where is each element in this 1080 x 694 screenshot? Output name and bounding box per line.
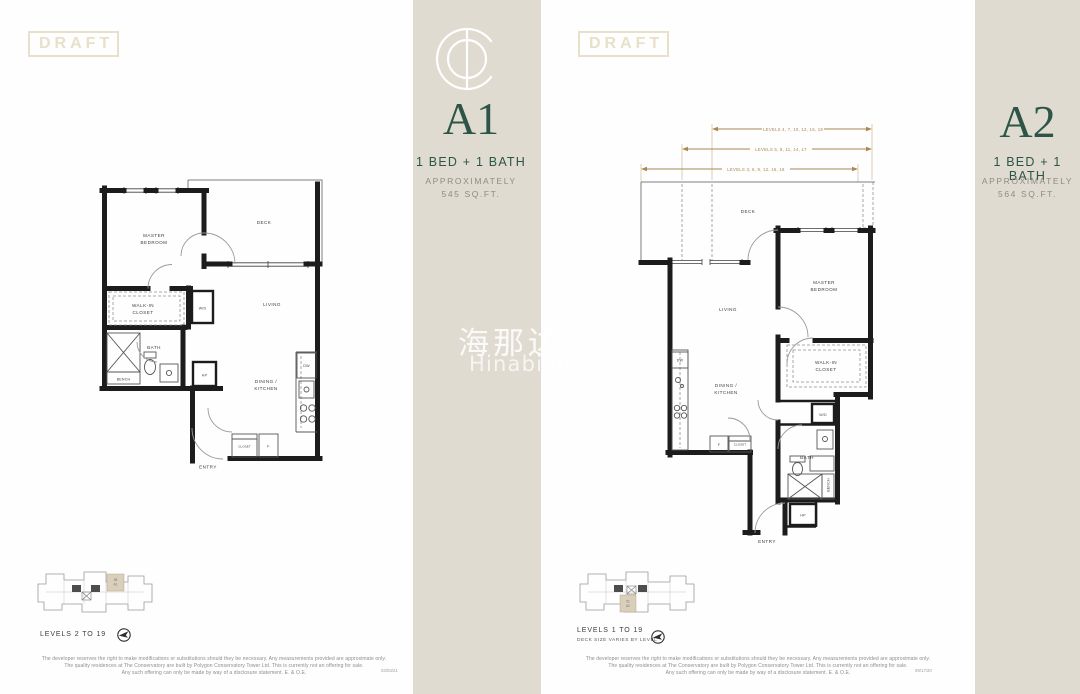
keyplan-a2: 01 A2 (570, 558, 705, 626)
label-dining-1: DINING / (715, 383, 738, 388)
deck-outline (641, 182, 875, 262)
keyplan-levels-a2: LEVELS 1 TO 19 (577, 627, 643, 634)
approx-label-a2: APPROXIMATELY (982, 176, 1073, 186)
revision-date-a2: 09/17/20 (915, 668, 932, 673)
label-dw: DW (677, 359, 684, 363)
keyplan-unit-plan: A1 (114, 583, 118, 587)
floorplan-a1: MASTER BEDROOM DECK LIVING WALK-IN CLOSE… (80, 176, 335, 471)
keyplan-levels-a1: LEVELS 2 TO 19 (40, 631, 106, 638)
label-closet: CLOSET (238, 445, 251, 449)
label-bench: BENCH (827, 478, 831, 492)
watermark-bird-icon (548, 316, 600, 364)
disclaimer-line-3: Any such offering can only be made by wa… (25, 670, 403, 677)
north-arrow-icon (116, 627, 132, 643)
label-bench: BENCH (117, 378, 131, 382)
draft-stamp-a2: DRAFT (578, 31, 669, 57)
panel-a1: A1 1 BED + 1 BATH APPROXIMATELY 545 SQ.F… (411, 0, 531, 694)
label-entry: ENTRY (758, 539, 776, 544)
windows (124, 187, 308, 268)
dim-label-3: LEVELS 3, 6, 9, 12, 15, 18 (727, 167, 785, 172)
revision-date-a1: 03/03/21 (381, 668, 398, 673)
keyplan-unit-number: 08 (114, 578, 118, 582)
label-master-1: MASTER (143, 233, 165, 238)
plan-code-a2: A2 (975, 98, 1080, 146)
label-wd: W/D (199, 307, 207, 311)
deck-dimension-lines: LEVELS 4, 7, 10, 13, 16, 19 LEVELS 5, 8,… (641, 124, 872, 182)
brochure-page: DRAFT DRAFT A1 1 BED + 1 BATH APPROXIMAT… (0, 0, 1080, 694)
floorplan-a2: LEVELS 4, 7, 10, 13, 16, 19 LEVELS 5, 8,… (630, 112, 895, 567)
approx-label-a1: APPROXIMATELY (425, 176, 516, 186)
dim-label-2: LEVELS 5, 8, 11, 14, 17 (755, 147, 807, 152)
keyplan-unit-number: 01 (626, 600, 630, 604)
medium-walls (778, 401, 836, 527)
label-living: LIVING (719, 307, 737, 312)
label-closet: CLOSET (734, 443, 747, 447)
label-walkin-2: CLOSET (815, 367, 836, 372)
disclaimer-line-1: The developer reserves the right to make… (568, 656, 948, 663)
plan-area-a2: APPROXIMATELY 564 SQ.FT. (975, 175, 1080, 200)
label-bath: BATH (800, 455, 814, 460)
label-living: LIVING (263, 302, 281, 307)
dim-label-1: LEVELS 4, 7, 10, 13, 16, 19 (763, 127, 823, 132)
room-labels: MASTER BEDROOM DECK LIVING WALK-IN CLOSE… (117, 220, 310, 470)
disclaimer-a2: The developer reserves the right to make… (568, 656, 948, 677)
label-dw: DW (303, 364, 310, 368)
label-deck: DECK (741, 209, 756, 214)
label-walkin-1: WALK-IN (132, 303, 154, 308)
label-walkin-1: WALK-IN (815, 360, 837, 365)
keyplan-unit-plan: A2 (626, 604, 630, 608)
plan-area-a1: APPROXIMATELY 545 SQ.FT. (411, 175, 531, 200)
label-dining-2: KITCHEN (254, 386, 277, 391)
label-master-2: BEDROOM (141, 240, 168, 245)
plan-code-a1: A1 (411, 95, 531, 143)
room-labels: DECK LIVING MASTER BEDROOM WALK-IN CLOSE… (677, 209, 838, 544)
label-dining-1: DINING / (255, 379, 278, 384)
label-fridge: F (718, 443, 721, 447)
label-dining-2: KITCHEN (714, 390, 737, 395)
label-hp: HP (202, 374, 208, 378)
label-walkin-2: CLOSET (132, 310, 153, 315)
label-master-1: MASTER (813, 280, 835, 285)
disclaimer-line-2: The quality residences at The Conservato… (568, 663, 948, 670)
label-bath: BATH (147, 345, 161, 350)
door-arcs (728, 230, 813, 533)
north-arrow-icon (650, 629, 666, 645)
label-wd: W/D (819, 413, 827, 417)
label-fridge: F (267, 445, 270, 449)
draft-stamp-a1: DRAFT (28, 31, 119, 57)
label-master-2: BEDROOM (811, 287, 838, 292)
disclaimer-line-2: The quality residences at The Conservato… (25, 663, 403, 670)
disclaimer-line-3: Any such offering can only be made by wa… (568, 670, 948, 677)
area-value-a1: 545 SQ.FT. (442, 189, 501, 199)
disclaimer-line-1: The developer reserves the right to make… (25, 656, 403, 663)
label-entry: ENTRY (199, 465, 217, 470)
label-deck: DECK (257, 220, 272, 225)
label-hp: HP (800, 514, 806, 518)
disclaimer-a1: The developer reserves the right to make… (25, 656, 403, 677)
panel-a2: A2 1 BED + 1 BATH APPROXIMATELY 564 SQ.F… (975, 0, 1080, 694)
fixture-walls (192, 291, 216, 386)
fixtures (107, 333, 317, 457)
keyplan-note-a2: DECK SIZE VARIES BY LEVEL (577, 638, 657, 643)
plan-type-a1: 1 BED + 1 BATH (411, 155, 531, 169)
keyplan-a1: 08 A1 (28, 558, 163, 626)
area-value-a2: 564 SQ.FT. (998, 189, 1057, 199)
